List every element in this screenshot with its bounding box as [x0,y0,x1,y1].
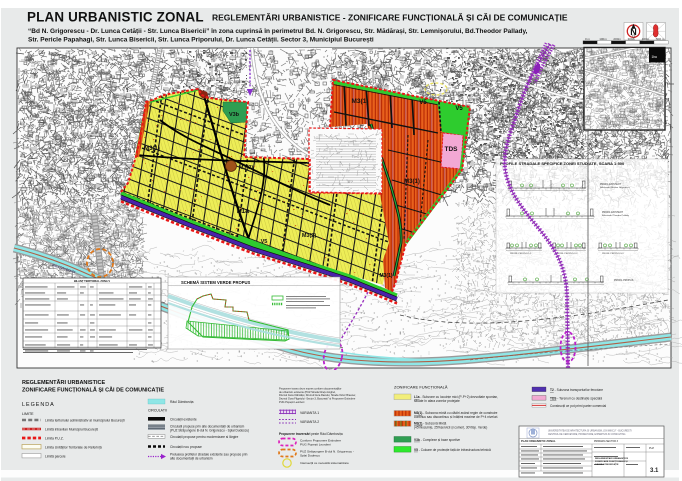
svg-text:LIMITE: LIMITE [22,412,34,416]
svg-text:CĂI DE COMUNICAȚIE: CĂI DE COMUNICAȚIE [595,463,619,466]
svg-text:Propunere traversări peste Râu: Propunere traversări peste Râul Dâmboviț… [279,432,343,436]
svg-text:Limita teritoriului administra: Limita teritoriului administrativ al mun… [45,419,125,423]
svg-text:ZONIFICARE FUNCȚIONALĂ: ZONIFICARE FUNCȚIONALĂ [394,385,448,390]
svg-text:Intersecții ce necesită sistem: Intersecții ce necesită sistematizare [300,461,349,465]
svg-text:V5: V5 [455,106,463,112]
svg-text:Splai Dudescu: Splai Dudescu [300,453,320,457]
svg-text:Circulații nou propuse: Circulații nou propuse [170,445,202,449]
svg-text:continuu sau discontinuu și în: continuu sau discontinuu și înălțimi max… [414,415,498,419]
svg-text:PRIMARIA SECTOR 3: PRIMARIA SECTOR 3 [594,440,619,443]
svg-text:M3(1): M3(1) [352,98,369,105]
svg-text:PLAN URBANISTIC ZONAL: PLAN URBANISTIC ZONAL [521,439,556,443]
svg-text:Limită parcele: Limită parcele [45,455,66,459]
svg-text:CENTRUL DE CERCETARE, PROIECTA: CENTRUL DE CERCETARE, PROIECTARE, EXPERT… [548,433,626,436]
svg-text:PROFILE STRADALE SPECIFICE ZON: PROFILE STRADALE SPECIFICE ZONEI STUDIAT… [500,161,625,166]
svg-text:PROFIL EXISTENT: PROFIL EXISTENT [600,183,621,186]
svg-text:Limita P.U.Z.: Limita P.U.Z. [45,437,64,441]
svg-text:alte documentații de urbanism: alte documentații de urbanism [170,457,213,461]
svg-text:PROFIL PROPUS 2-2: PROFIL PROPUS 2-2 [556,253,578,255]
svg-text:Str. Pericle Papahagi, Str. Lu: Str. Pericle Papahagi, Str. Lunca Biseri… [28,37,374,44]
svg-text:Bulevardul Theodor Pallady: Bulevardul Theodor Pallady [602,214,630,217]
svg-text:1ha: 1ha [652,55,658,59]
svg-text:V3b - Complexe și baze sportiv: V3b - Complexe și baze sportive [414,438,460,442]
svg-text:PUG Popești Leordeni: PUG Popești Leordeni [279,400,305,404]
svg-text:400m: 400m [642,37,650,41]
svg-text:Circulații existente: Circulații existente [170,418,197,422]
svg-text:PROFIL PROPUS: PROFIL PROPUS [614,279,634,282]
svg-text:“Bd N. Grigorescu - Dr. Lunca: “Bd N. Grigorescu - Dr. Lunca Cetății - … [28,28,528,35]
svg-text:L1a: L1a [237,206,250,215]
svg-text:LEGENDA: LEGENDA [22,402,55,408]
svg-text:Construcții ce pot primi parte: Construcții ce pot primi parter comercia… [550,404,606,408]
svg-text:200m: 200m [613,37,621,41]
svg-text:ZONIFICARE FUNCȚIONALĂ ȘI: ZONIFICARE FUNCȚIONALĂ ȘI [595,460,628,463]
svg-text:REGLEMENTĂRI URBANISTICE - ZON: REGLEMENTĂRI URBANISTICE - ZONIFICARE FU… [212,13,568,23]
svg-text:V5: V5 [419,100,427,106]
svg-text:PROFIL EXISTENT: PROFIL EXISTENT [602,211,623,214]
svg-text:M3(1): M3(1) [144,146,160,152]
svg-text:TDS: TDS [445,146,459,153]
svg-text:VARIANTA 1: VARIANTA 1 [300,411,319,415]
svg-text:M3(1): M3(1) [404,179,420,185]
svg-text:PUG Popești Leordeni: PUG Popești Leordeni [300,442,331,446]
svg-text:PROFIL PROPUS 3-3: PROFIL PROPUS 3-3 [602,253,624,255]
svg-text:T2 - Subzona transporturilor f: T2 - Subzona transporturilor feroviare [550,388,603,392]
svg-text:V5 - Culoare de protecție față: V5 - Culoare de protecție față de infras… [414,448,491,452]
svg-text:(45%locuințe, 25%servicii și c: (45%locuințe, 25%servicii și comerț, 30%… [414,426,487,430]
svg-text:V3b: V3b [229,112,240,118]
svg-text:3.1: 3.1 [650,468,659,474]
svg-text:SCHEMĂ SISTEM VERDE PROPUS: SCHEMĂ SISTEM VERDE PROPUS [181,280,251,285]
svg-text:UNIVERSITATEA DE ARHITECTURA S: UNIVERSITATEA DE ARHITECTURA SI URBANISM… [548,430,632,433]
svg-text:PUZ: PUZ [649,447,654,450]
svg-text:M3(2): M3(2) [239,165,254,171]
svg-text:VARIANTA 2: VARIANTA 2 [300,420,319,424]
svg-text:Limita Unităților Teritoriale: Limita Unităților Teritoriale de Referin… [45,446,102,450]
svg-text:Bulevardul Nicolae Grigorescu: Bulevardul Nicolae Grigorescu [600,186,630,189]
svg-text:Râul Dâmbovița: Râul Dâmbovița [170,400,194,404]
svg-text:M3(2): M3(2) [302,233,317,239]
svg-text:300m: 300m [628,37,636,41]
svg-text:M3(1): M3(1) [379,273,392,279]
svg-text:100m: 100m [599,37,607,41]
svg-text:PLAN URBANISTIC ZONAL: PLAN URBANISTIC ZONAL [27,10,204,25]
svg-text:CIRCULAȚII: CIRCULAȚII [148,409,167,413]
svg-text:REGLEMENTĂRI URBANISTICE: REGLEMENTĂRI URBANISTICE [595,457,629,460]
svg-text:ZONIFICARE FUNCȚIONALĂ ȘI CĂI: ZONIFICARE FUNCȚIONALĂ ȘI CĂI DE COMUNIC… [22,387,164,394]
svg-text:0 m: 0 m [585,37,591,41]
svg-text:PROFIL PROPUS 1-1: PROFIL PROPUS 1-1 [510,253,532,255]
svg-text:situate în afara zonelor prote: situate în afara zonelor protejate [414,399,460,403]
svg-text:BILANȚ TERITORIAL ZONA V: BILANȚ TERITORIAL ZONA V [74,279,110,283]
svg-text:N: N [630,27,637,37]
svg-text:500 m: 500 m [656,37,665,41]
svg-text:TDS - Terenuri cu destinație s: TDS - Terenuri cu destinație specială [550,397,602,401]
svg-text:REGLEMENTĂRI URBANISTICE: REGLEMENTĂRI URBANISTICE [22,379,105,386]
svg-text:Limită intravilan Municipiul B: Limită intravilan Municipiul București [45,428,98,432]
svg-text:(PUZ Străpungere B-dul N. Grig: (PUZ Străpungere B-dul N. Grigorescu - S… [170,429,249,433]
svg-text:Circulații propuse pentru mode: Circulații propuse pentru modernizare si… [170,435,239,439]
svg-text:V5: V5 [261,239,268,245]
